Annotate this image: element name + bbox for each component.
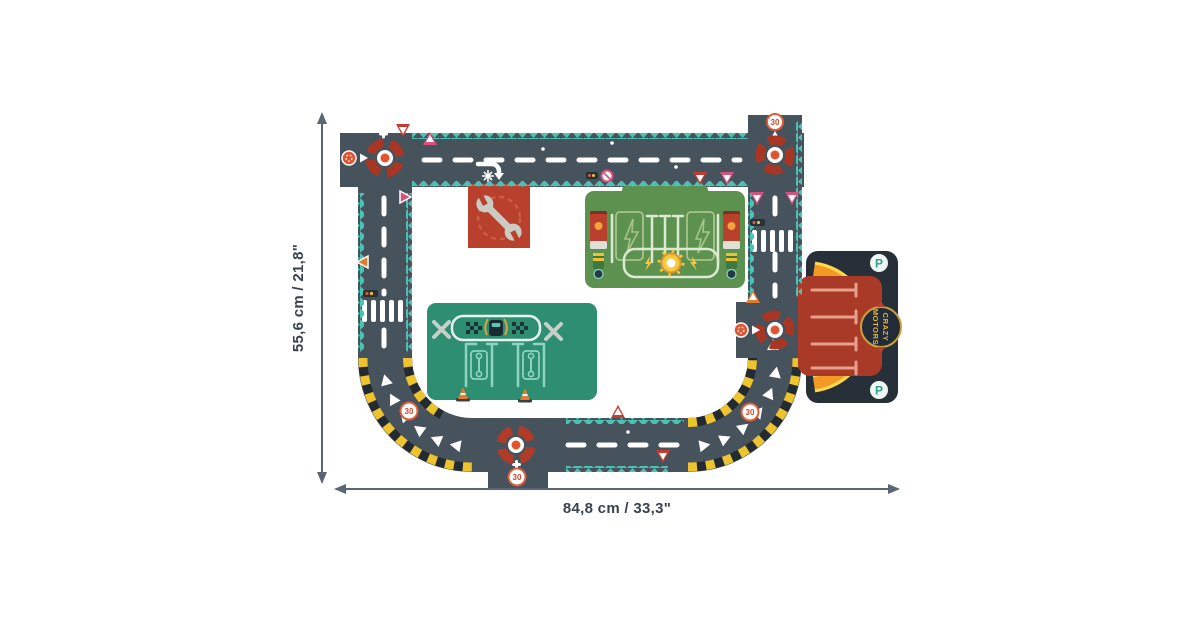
pit-stop-building	[427, 303, 597, 403]
speed-30-sign-icon: 30	[742, 404, 759, 421]
product-diagram-canvas: CRAZY MOTORS P P	[0, 0, 1200, 630]
charging-station-building	[585, 185, 745, 288]
svg-text:30: 30	[771, 118, 780, 127]
height-dimension: 55,6 cm / 21,8"	[290, 112, 327, 484]
brand-line2: MOTORS	[871, 309, 880, 345]
parking-letter-bottom: P	[875, 384, 883, 398]
svg-text:30: 30	[405, 407, 414, 416]
checkered-flag-banner	[452, 316, 540, 340]
parking-letter-top: P	[875, 257, 883, 271]
parking-sign-icon: P	[868, 379, 890, 401]
parking-lot-piece: CRAZY MOTORS P P	[798, 251, 901, 403]
brand-line1: CRAZY	[881, 313, 890, 342]
road-track-illustration: CRAZY MOTORS P P	[0, 0, 1200, 630]
svg-text:30: 30	[746, 408, 755, 417]
garage-wrench-sign	[468, 184, 530, 248]
parking-sign-icon: P	[868, 252, 890, 274]
height-label: 55,6 cm / 21,8"	[290, 244, 307, 352]
no-entry-sign-icon	[602, 171, 613, 182]
speed-30-sign-icon: 30	[767, 114, 783, 130]
speed-30-sign-icon: 30	[401, 403, 418, 420]
width-label: 84,8 cm / 33,3"	[563, 500, 671, 517]
width-dimension: 84,8 cm / 33,3"	[334, 484, 900, 517]
speed-30-sign-icon: 30	[509, 469, 526, 486]
svg-text:30: 30	[513, 473, 522, 482]
